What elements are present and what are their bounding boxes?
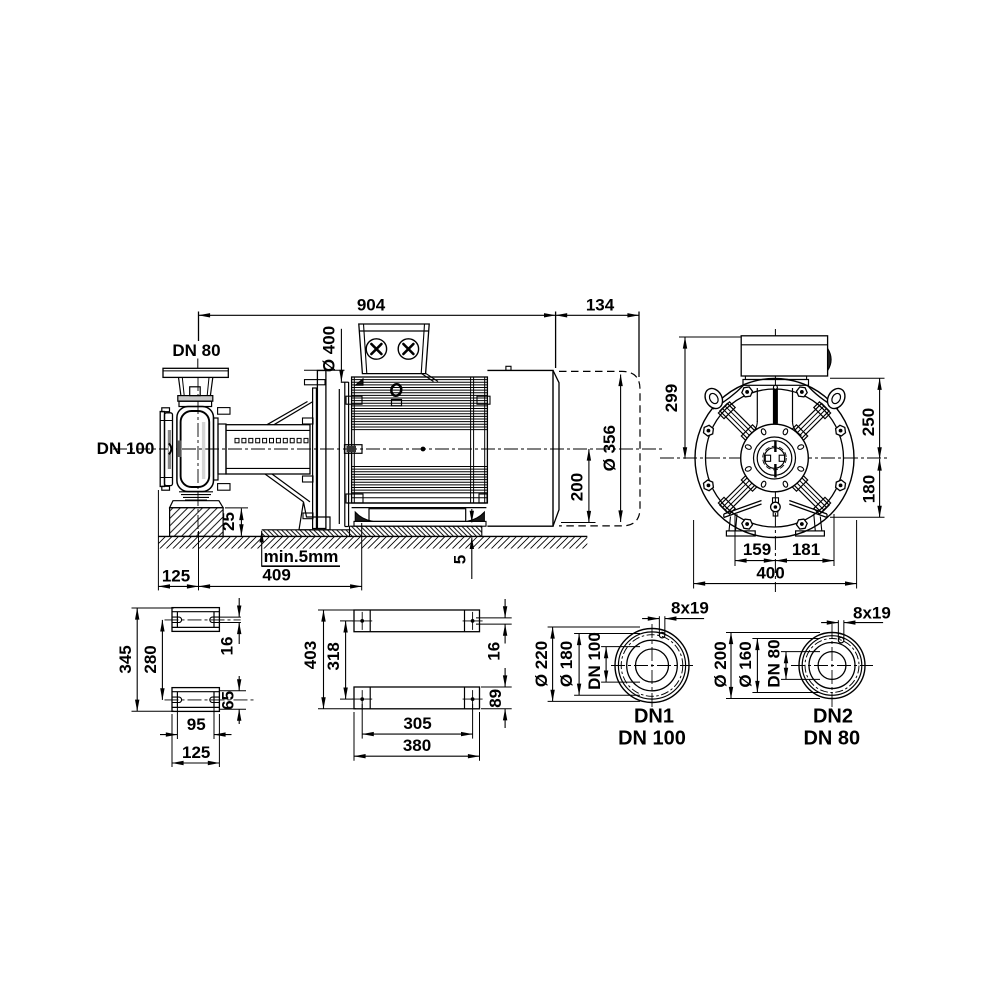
svg-text:409: 409 (262, 566, 290, 585)
svg-text:Ø 160: Ø 160 (736, 641, 755, 687)
svg-text:299: 299 (662, 384, 681, 412)
svg-text:400: 400 (756, 564, 784, 583)
svg-text:DN 100: DN 100 (97, 439, 155, 458)
svg-text:5: 5 (451, 555, 470, 564)
svg-text:380: 380 (403, 736, 431, 755)
svg-text:904: 904 (357, 296, 386, 315)
svg-text:DN 80: DN 80 (765, 639, 784, 687)
svg-text:16: 16 (218, 637, 237, 656)
svg-text:250: 250 (859, 408, 878, 436)
svg-text:159: 159 (743, 540, 771, 559)
svg-text:25: 25 (219, 512, 238, 531)
svg-text:89: 89 (486, 689, 505, 708)
svg-text:DN 80: DN 80 (172, 341, 220, 360)
svg-text:134: 134 (586, 296, 615, 315)
svg-text:DN2: DN2 (813, 706, 853, 728)
svg-text:125: 125 (162, 567, 190, 586)
svg-text:181: 181 (792, 540, 820, 559)
svg-text:305: 305 (403, 714, 431, 733)
svg-text:318: 318 (324, 642, 343, 670)
svg-text:95: 95 (187, 715, 206, 734)
svg-text:DN1: DN1 (634, 706, 674, 728)
svg-text:DN 80: DN 80 (803, 728, 860, 750)
svg-text:345: 345 (116, 645, 135, 673)
svg-text:16: 16 (485, 642, 504, 661)
svg-text:65: 65 (219, 691, 238, 710)
svg-text:Ø 356: Ø 356 (600, 425, 619, 471)
svg-text:180: 180 (860, 475, 879, 503)
svg-text:280: 280 (141, 645, 160, 673)
svg-text:Ø 200: Ø 200 (711, 641, 730, 687)
svg-text:200: 200 (568, 473, 587, 501)
svg-text:8x19: 8x19 (671, 598, 709, 617)
svg-text:8x19: 8x19 (853, 603, 891, 622)
svg-text:403: 403 (301, 641, 320, 669)
svg-text:Ø 180: Ø 180 (557, 641, 576, 687)
svg-text:DN 100: DN 100 (618, 728, 686, 750)
svg-text:DN 100: DN 100 (585, 632, 604, 690)
svg-text:Ø 400: Ø 400 (320, 326, 339, 372)
svg-text:min.5mm: min.5mm (264, 547, 339, 566)
svg-text:125: 125 (182, 743, 210, 762)
svg-text:Ø 220: Ø 220 (532, 641, 551, 687)
